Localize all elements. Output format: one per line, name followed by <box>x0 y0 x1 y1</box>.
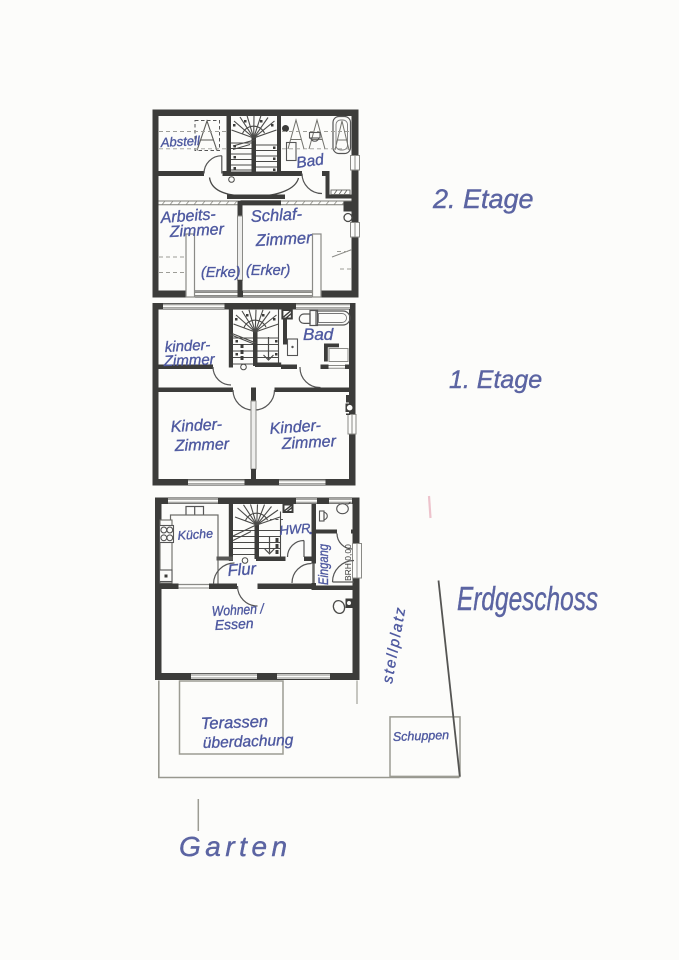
svg-text:Zimmer: Zimmer <box>174 436 230 455</box>
svg-text:BRH 0,00: BRH 0,00 <box>343 544 353 581</box>
svg-text:HWR: HWR <box>279 520 311 538</box>
svg-text:Abstell: Abstell <box>159 133 201 150</box>
svg-text:Terassen: Terassen <box>201 713 269 733</box>
svg-text:Zimmer: Zimmer <box>163 351 216 370</box>
svg-text:überdachung: überdachung <box>203 732 294 752</box>
svg-text:1. Etage: 1. Etage <box>449 366 542 394</box>
svg-text:Zimmer: Zimmer <box>280 433 337 453</box>
svg-text:Zimmer: Zimmer <box>254 229 313 250</box>
svg-text:Eingang: Eingang <box>316 544 331 585</box>
svg-text:(Erker): (Erker) <box>246 263 290 279</box>
svg-text:Zimmer: Zimmer <box>168 221 225 241</box>
svg-text:Kinder-: Kinder- <box>170 416 222 436</box>
svg-text:Schlaf-: Schlaf- <box>250 205 303 226</box>
svg-text:Erdgeschoss: Erdgeschoss <box>457 582 598 618</box>
svg-text:Garten: Garten <box>179 831 292 862</box>
svg-text:Essen: Essen <box>214 615 254 633</box>
svg-text:Flur: Flur <box>227 560 258 580</box>
svg-text:(Erke): (Erke) <box>201 265 240 281</box>
svg-text:Bad: Bad <box>303 325 334 344</box>
svg-text:Schuppen: Schuppen <box>393 728 450 744</box>
svg-text:Küche: Küche <box>177 526 213 542</box>
svg-text:2. Etage: 2. Etage <box>432 184 534 214</box>
